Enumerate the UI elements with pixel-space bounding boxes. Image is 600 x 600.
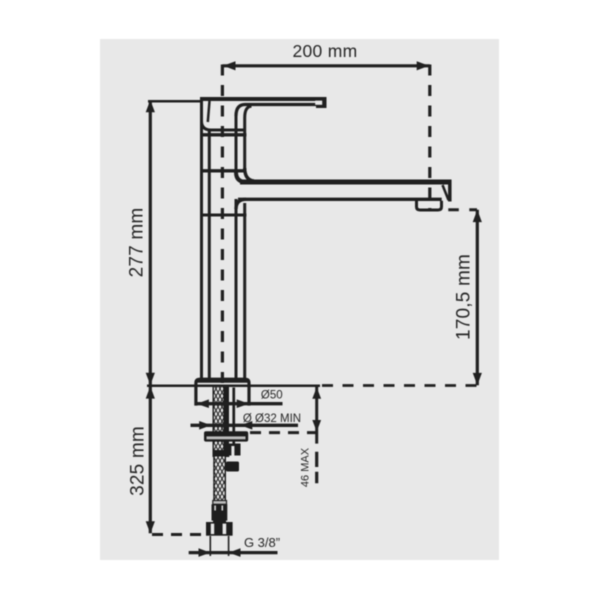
svg-text:325 mm: 325 mm — [128, 426, 149, 496]
svg-text:Ø50: Ø50 — [261, 390, 283, 402]
svg-text:170,5 mm: 170,5 mm — [454, 254, 475, 340]
svg-text:Ø Ø32 MIN: Ø Ø32 MIN — [243, 413, 301, 425]
svg-text:277 mm: 277 mm — [127, 208, 148, 278]
svg-text:G 3/8”: G 3/8” — [244, 535, 280, 550]
svg-text:46 MAX: 46 MAX — [300, 447, 312, 487]
svg-text:200 mm: 200 mm — [292, 41, 357, 61]
